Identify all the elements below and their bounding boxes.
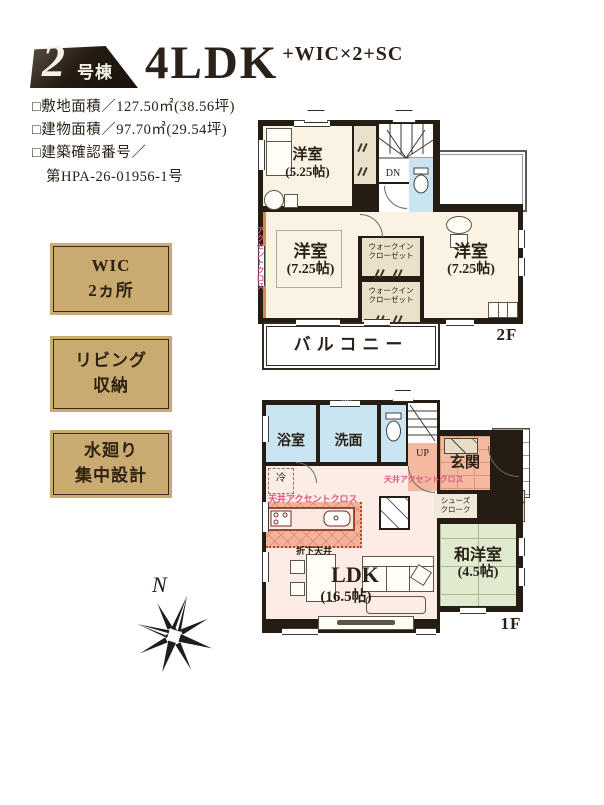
room-525-name: 洋室	[263, 146, 352, 164]
toilet-icon	[409, 158, 433, 212]
wic1-label: ウォークイン クローゼット	[362, 242, 420, 260]
plan-title: 4LDK	[145, 37, 278, 89]
roof-vent-icon	[392, 110, 416, 123]
stairs-up-icon	[408, 403, 437, 443]
kitchen-area	[266, 502, 362, 548]
window	[518, 568, 525, 586]
plan-title-row: 4LDK +WIC×2+SC	[145, 36, 403, 90]
unit-badge: 2 号棟	[30, 44, 140, 90]
window	[262, 552, 269, 582]
feature-water-line2: 集中設計	[75, 466, 147, 485]
desk-icon	[284, 194, 298, 208]
stool-icon	[446, 216, 472, 234]
window	[518, 258, 525, 276]
feature-living-line1: リビング	[75, 351, 147, 370]
shoes-line1: シューズ	[434, 496, 477, 505]
spec-confirmation-number: 第HPA-26-01956-1号	[32, 166, 235, 189]
wic2-line2: クローゼット	[362, 295, 420, 304]
window	[416, 628, 436, 635]
spec-list: □敷地面積／127.50㎡(38.56坪) □建物面積／97.70㎡(29.54…	[32, 96, 235, 189]
floor1-plan: 冷 浴室 洗面 UP 玄関	[256, 390, 546, 642]
room-525-size: (5.25帖)	[263, 164, 352, 180]
compass-n-label: N	[151, 572, 168, 597]
roof-vent-icon	[304, 110, 328, 123]
feature-living-line2: 収納	[93, 376, 129, 395]
window	[282, 628, 318, 635]
feature-badge-living-storage: リビング 収納	[50, 336, 172, 412]
shoes-closet-label: シューズ クローク	[434, 496, 477, 514]
room-1f-stairs	[408, 403, 437, 443]
genkan-label: 玄関	[440, 454, 490, 472]
feature-badge-wic: WIC 2ヵ所	[50, 243, 172, 315]
washitsu-label: 和洋室 (4.5帖)	[440, 546, 516, 582]
cushion-icon	[410, 564, 432, 586]
washitsu-name: 和洋室	[440, 546, 516, 565]
chair-icon	[264, 190, 284, 210]
toilet-icon	[381, 405, 406, 462]
bath-label: 浴室	[266, 434, 316, 451]
unit-suffix: 号棟	[77, 58, 113, 83]
genkan-step	[444, 438, 478, 454]
hanger-mark-icon	[357, 162, 367, 180]
hanger-mark-icon	[374, 264, 402, 282]
feature-wic-line2: 2ヵ所	[88, 281, 134, 300]
balcony-label: バルコニー	[264, 335, 438, 355]
wic1-line2: クローゼット	[362, 251, 420, 260]
fridge-icon: 冷	[268, 468, 294, 494]
wic2-line1: ウォークイン	[362, 286, 420, 295]
ldk-label: LDK	[300, 562, 410, 588]
counter-icon	[488, 302, 518, 318]
roof-void	[433, 150, 527, 212]
window	[446, 319, 474, 326]
shoes-line2: クローク	[434, 505, 477, 514]
washitsu-size: (4.5帖)	[440, 565, 516, 582]
room-label-725-left: 洋室 (7.25帖)	[263, 242, 358, 279]
feature-badge-water-design: 水廻り 集中設計	[50, 430, 172, 498]
window	[518, 230, 525, 248]
floor2-plan: バルコニー 洋室	[256, 106, 546, 372]
roof-vent-icon	[392, 390, 414, 402]
accent-cloth-label-2f: アクセントクロス	[255, 226, 266, 290]
spec-site-area: □敷地面積／127.50㎡(38.56坪)	[32, 96, 235, 119]
hanger-mark-icon	[357, 138, 367, 156]
wic2-label: ウォークイン クローゼット	[362, 286, 420, 304]
wash-label: 洗面	[320, 434, 377, 451]
window	[262, 502, 269, 532]
window	[296, 319, 340, 326]
compass-rose-icon: N	[122, 570, 222, 680]
room-725l-name: 洋室	[263, 242, 358, 262]
ds-label: DS	[342, 399, 351, 406]
ceiling-accent-label-hall: 天井アクセントクロス	[384, 474, 474, 485]
floorplan-flyer: 2 号棟 4LDK +WIC×2+SC □敷地面積／127.50㎡(38.56坪…	[0, 0, 604, 805]
spec-building-area: □建物面積／97.70㎡(29.54坪)	[32, 119, 235, 142]
room-label-525: 洋室 (5.25帖)	[263, 146, 352, 180]
window	[460, 607, 486, 614]
room-2f-toilet	[409, 158, 433, 212]
stairs-dn-label: DN	[378, 168, 408, 180]
window	[364, 319, 390, 326]
kitchen-counter-icon	[266, 506, 360, 536]
orishita-ceiling-label: 折下天井	[296, 546, 332, 557]
tv-board-icon	[318, 616, 414, 630]
spec-confirmation-label: □建築確認番号／	[32, 142, 235, 165]
feature-wic-line1: WIC	[92, 256, 131, 275]
window	[518, 538, 525, 556]
room-725r-name: 洋室	[424, 242, 518, 262]
room-725r-size: (7.25帖)	[424, 262, 518, 279]
room-725l-size: (7.25帖)	[263, 262, 358, 279]
floor2-tag: 2F	[492, 325, 522, 345]
ceiling-accent-label-ldk: 天井アクセントクロス	[268, 492, 358, 505]
room-toilet-1f	[381, 405, 406, 462]
understair-storage	[379, 496, 410, 530]
balcony-2f: バルコニー	[262, 322, 440, 370]
stairs-up-label: UP	[408, 448, 437, 460]
ldk-size-label: (16.5帖)	[286, 588, 406, 606]
wic1-line1: ウォークイン	[362, 242, 420, 251]
floor1-tag: 1F	[496, 614, 526, 634]
unit-number: 2	[42, 34, 65, 87]
room-label-725-right: 洋室 (7.25帖)	[424, 242, 518, 279]
plan-subtitle: +WIC×2+SC	[282, 43, 403, 65]
compass: N	[122, 570, 222, 680]
feature-water-line1: 水廻り	[84, 441, 138, 460]
fridge-label: 冷	[269, 473, 293, 485]
